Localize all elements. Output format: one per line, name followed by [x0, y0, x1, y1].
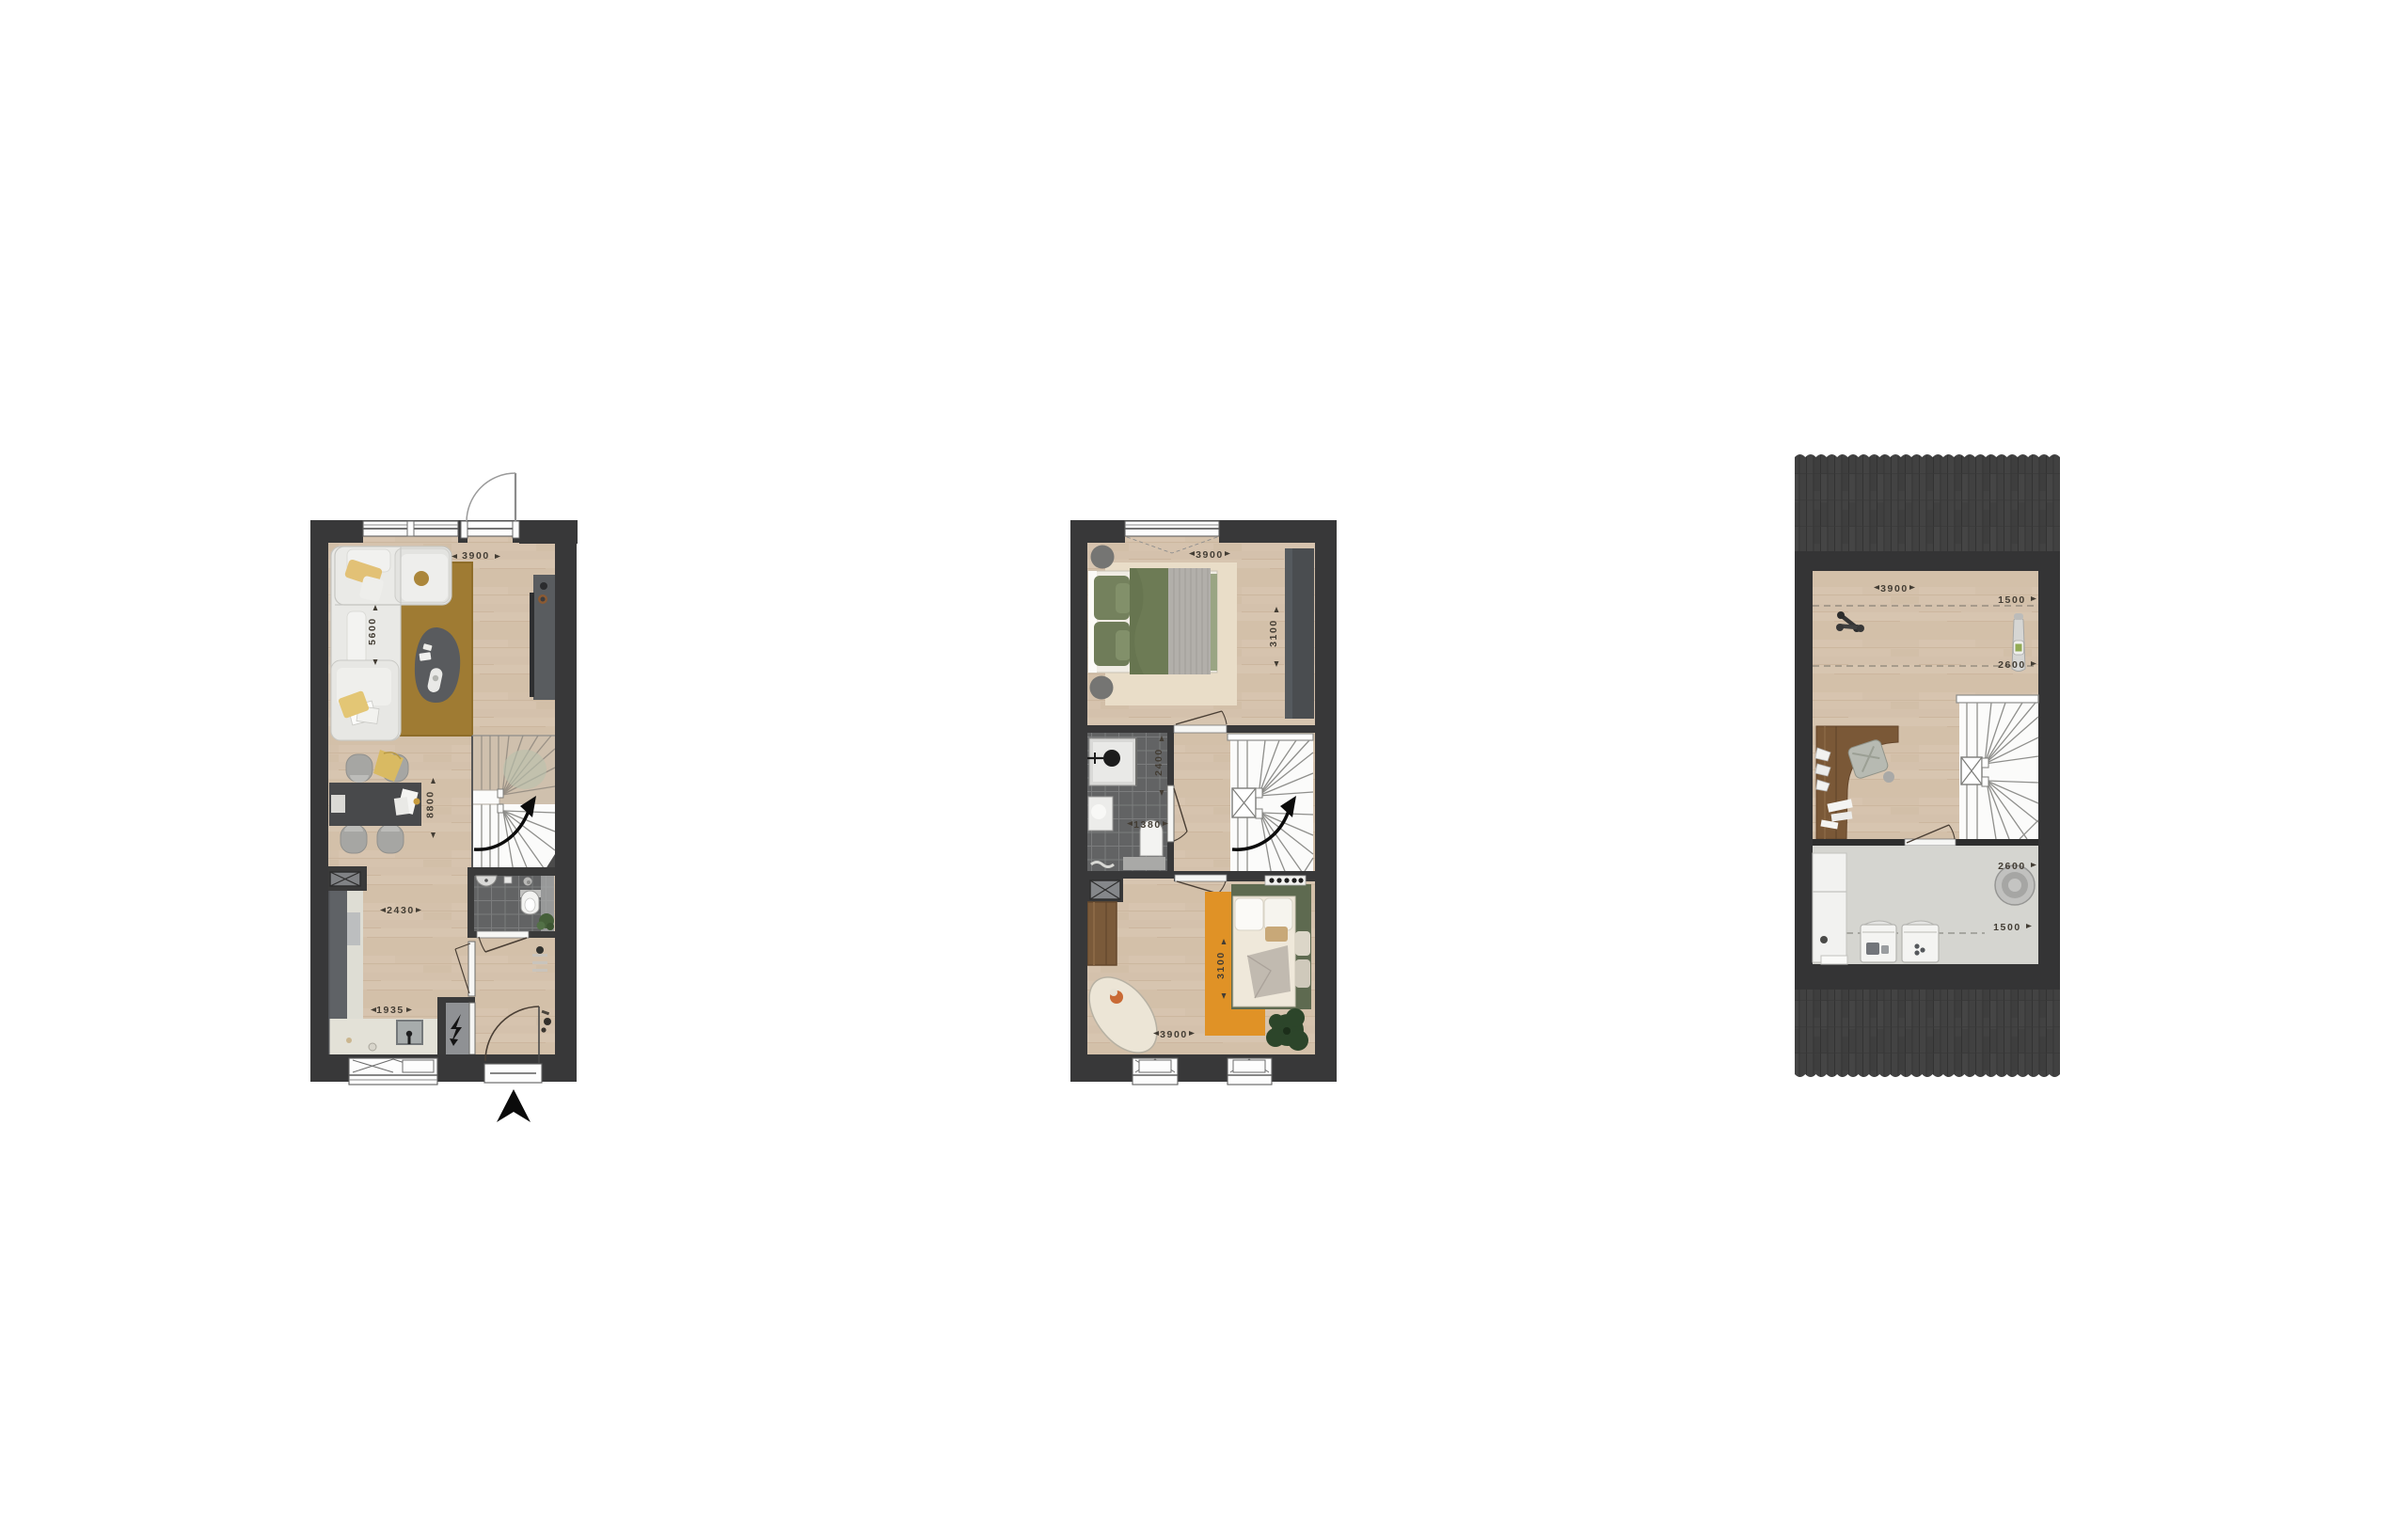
svg-text:2430: 2430 — [387, 905, 415, 916]
svg-text:2600: 2600 — [1998, 861, 2026, 872]
svg-text:3100: 3100 — [1268, 619, 1279, 647]
svg-text:5600: 5600 — [367, 617, 378, 645]
svg-text:2400: 2400 — [1153, 748, 1164, 776]
svg-text:1380: 1380 — [1133, 819, 1162, 831]
svg-text:1935: 1935 — [376, 1005, 404, 1016]
svg-text:3900: 3900 — [1880, 583, 1909, 594]
svg-text:2600: 2600 — [1998, 659, 2026, 671]
svg-text:1500: 1500 — [1998, 594, 2026, 606]
svg-text:3100: 3100 — [1215, 951, 1227, 979]
svg-text:1500: 1500 — [1993, 922, 2021, 933]
svg-text:3900: 3900 — [1196, 549, 1224, 561]
svg-text:3900: 3900 — [1160, 1029, 1188, 1040]
svg-text:8800: 8800 — [425, 790, 436, 818]
svg-text:3900: 3900 — [462, 550, 490, 562]
